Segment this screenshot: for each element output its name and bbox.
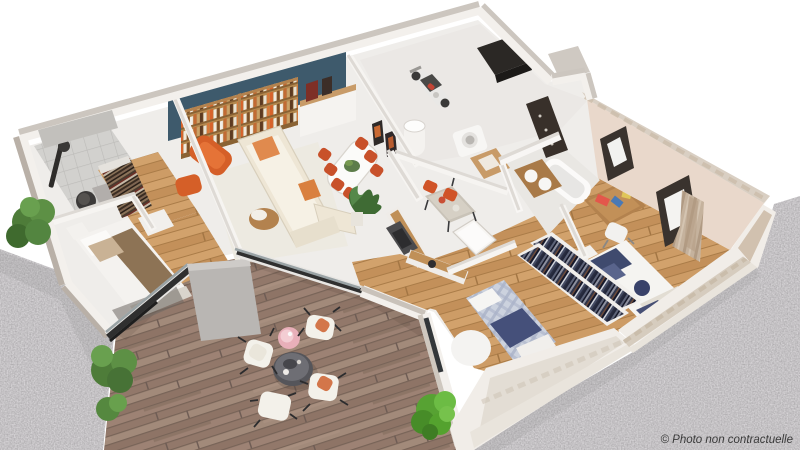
svg-text:© Photo non contractuelle: © Photo non contractuelle xyxy=(660,434,793,446)
